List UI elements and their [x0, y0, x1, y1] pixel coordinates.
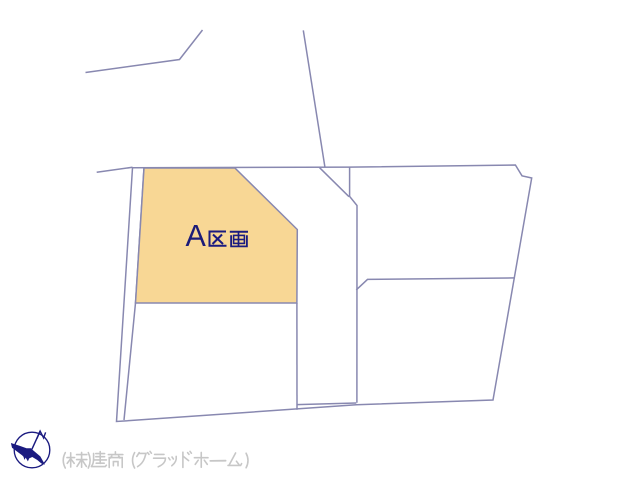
- svg-text:A: A: [186, 219, 207, 253]
